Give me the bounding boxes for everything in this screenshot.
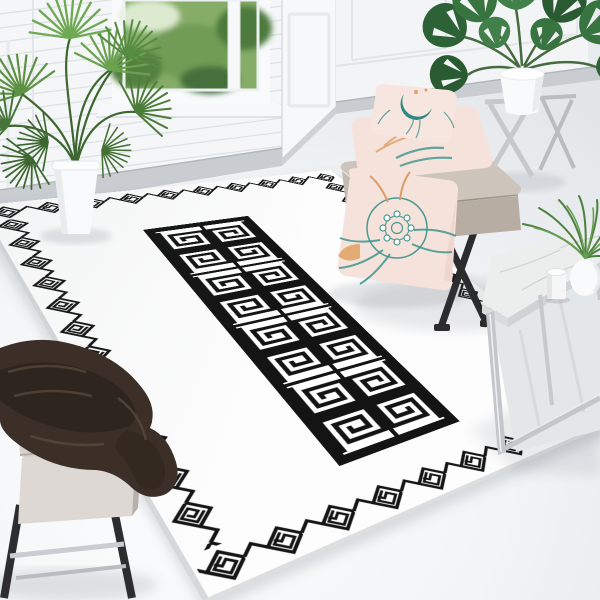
furniture-layer bbox=[0, 0, 600, 600]
floor-pillow bbox=[328, 168, 468, 308]
side-table bbox=[470, 196, 600, 475]
monstera-pot bbox=[500, 68, 544, 115]
photo-stage bbox=[0, 0, 600, 600]
palm-pot bbox=[52, 161, 100, 234]
floor-pillow-body bbox=[338, 168, 458, 290]
palm-plant bbox=[0, 0, 187, 244]
stool-rail-1 bbox=[10, 544, 124, 556]
top-pillow bbox=[371, 84, 457, 143]
stacked-pillows bbox=[352, 84, 493, 180]
